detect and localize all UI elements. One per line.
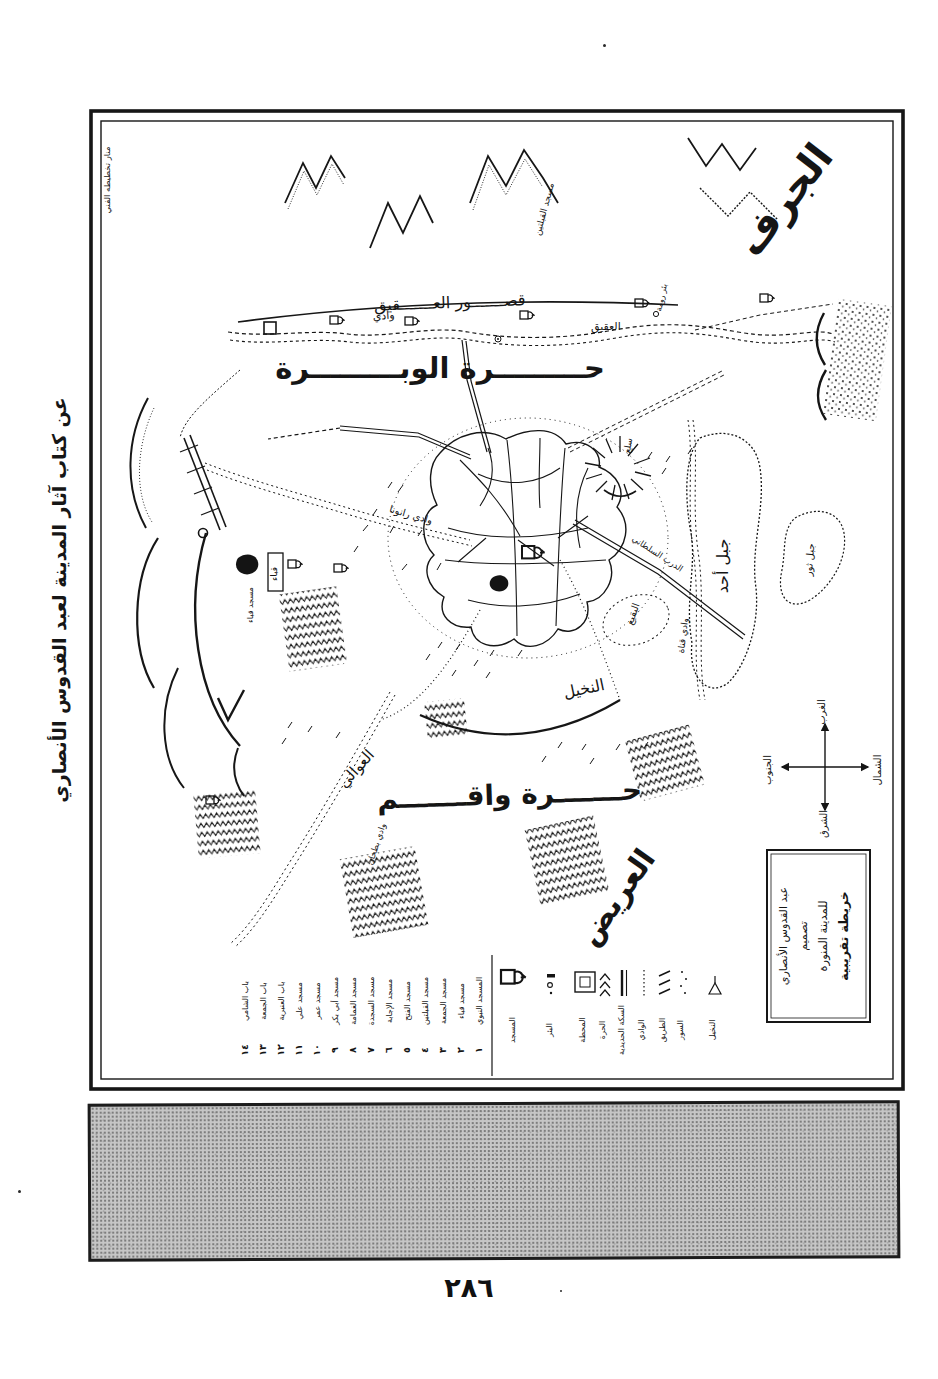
scan-speck <box>18 1190 21 1193</box>
legend-symbol-label: النخيل <box>708 1020 717 1041</box>
legend-entry-number: ١٤ <box>239 1044 250 1056</box>
legend-entry-label: المسجد النبوي <box>475 977 484 1025</box>
legend-entry-label: مسجد أبي بكر <box>330 977 340 1026</box>
legend-symbol-label: الطريق <box>658 1018 667 1043</box>
road-icon <box>659 971 670 994</box>
scan-speck <box>603 44 606 47</box>
lava-icon <box>600 974 610 996</box>
mosque-icon <box>405 317 420 325</box>
label-jabal-thawr: جبل ثور <box>803 543 817 578</box>
settlement-dots <box>817 299 892 421</box>
city-dark-quarter <box>490 575 509 591</box>
halftone-caption-bar <box>88 1100 901 1262</box>
station-icon <box>575 972 595 992</box>
legend-entry-label: مسجد القبلتين <box>421 977 430 1025</box>
label-awali: العوالي <box>335 746 379 792</box>
haram-mosque-icon <box>522 546 545 558</box>
cartouche-line2: للمدينة المنورة <box>816 901 831 972</box>
legend-entry-label: مسجد الغمامة <box>349 977 358 1024</box>
compass-south-label: الجنوب <box>762 755 773 785</box>
label-darb-sultani: الدرب السلطاني <box>630 533 685 573</box>
mosque-icon <box>330 316 345 324</box>
legend-symbol-label: المحطة <box>578 1017 587 1042</box>
mosque-icon <box>520 311 535 319</box>
corner-annotation: منار تخطيطه الفني <box>102 146 112 213</box>
margin-caption: عن كتاب آثار المدينة لعبد القدوس الأنصار… <box>48 250 76 950</box>
label-quba: قباء <box>269 567 279 581</box>
city-outline <box>424 431 626 647</box>
legend-symbol-label: الحرة <box>598 1021 607 1039</box>
cartouche-line4: عبد القدوس الأنصاري <box>776 887 790 985</box>
legend-entry-number: ١٠ <box>311 1044 322 1056</box>
legend-entry-label: مسجد السجدة <box>367 977 376 1026</box>
quba-area <box>236 553 349 591</box>
wadi-aqiq-branch <box>695 304 833 330</box>
legend-entry-label: مسجد قباء <box>457 983 466 1019</box>
west-ridge-arcs <box>130 370 244 796</box>
compass-east-label: الشرق <box>818 810 829 838</box>
legend-symbol-label: المسجد <box>508 1017 517 1043</box>
label-nakheel: النخيل <box>562 675 606 702</box>
label-wadi-qanat: وادي قناة <box>676 618 690 654</box>
wadi-aqiq-group <box>228 302 835 346</box>
railway-icon <box>622 970 627 996</box>
legend-entry-number: ٩ <box>329 1047 340 1053</box>
cartouche: خريطة تقريبية للمدينة المنورة تصميم عبد … <box>767 850 870 1022</box>
legend-entry-number: ١٣ <box>257 1044 268 1056</box>
legend-symbol-label: البئر <box>545 1023 554 1038</box>
label-jurf: الجرف <box>726 134 842 265</box>
legend-entry-number: ١٢ <box>275 1044 286 1056</box>
legend-entry-label: باب الجمعة <box>259 982 268 1019</box>
label-qiblatain: مسجد القبلتين <box>532 182 556 237</box>
page-number: ٢٨٦ <box>0 1272 938 1303</box>
map-plate: منار تخطيطه الفني قصـــــــور العـــــــ… <box>88 108 906 1093</box>
legend-numbered-section: المسجد النبوي١مسجد قباء٢مسجد الجمعة٣مسجد… <box>239 977 484 1056</box>
legend-symbols-section <box>501 970 721 996</box>
legend-entry-number: ٦ <box>383 1047 394 1053</box>
well-mark-dot <box>497 338 499 340</box>
mosque-icon <box>760 294 775 302</box>
well-icon <box>547 974 555 994</box>
legend-entry-number: ١ <box>473 1047 484 1053</box>
label-qusur-aqiq: قصـــــــور العـــــــقيق <box>374 290 526 315</box>
cartouche-line3: تصميم <box>797 921 810 951</box>
legend-entry-number: ٧ <box>365 1047 376 1053</box>
quba-dark-blob <box>236 555 258 575</box>
compass: الشمال الجنوب الغرب الشرق <box>762 699 883 838</box>
legend-entry-label: مسجد الفتح <box>403 981 412 1021</box>
legend-entry-number: ٤ <box>419 1047 430 1053</box>
legend-entry-number: ١١ <box>293 1044 304 1056</box>
label-harrat-wabara: حـــــــــرة الوبـــــــــرة <box>275 351 605 385</box>
compass-west-label: الغرب <box>816 699 827 725</box>
label-aqiq-word: العقيق <box>591 320 621 334</box>
label-harrat-waqim: حـــــــرة واقـــــــم <box>377 773 643 815</box>
legend-entry-label: مسجد الإجابة <box>385 979 395 1023</box>
legend-entry-label: باب العنبرية <box>277 981 286 1020</box>
railway <box>180 435 226 530</box>
label-bir-ruma: بئر رومة <box>654 283 669 312</box>
label-masjid-quba: مسجد قباء <box>246 587 255 623</box>
small-o-mark <box>199 529 208 538</box>
cartouche-line1: خريطة تقريبية <box>836 891 851 981</box>
map-inner-border <box>101 121 893 1079</box>
north-ridges <box>285 138 778 248</box>
label-jabal-uhud: جبل أحد <box>712 539 732 594</box>
building-square <box>264 322 276 334</box>
legend-entry-label: مسجد الجمعة <box>439 978 448 1024</box>
label-baqi: البقيع <box>624 601 643 626</box>
legend-symbol-label: السور <box>676 1020 685 1041</box>
legend-symbol-label: الوادي <box>637 1020 646 1041</box>
legend-entry-label: مسجد عمر <box>313 982 322 1020</box>
wadi-ranuna-lines <box>205 463 472 546</box>
mosque-icon <box>501 970 526 984</box>
legend-entry-number: ٣ <box>437 1047 448 1053</box>
legend-entry-label: باب الشامي <box>241 981 250 1021</box>
legend-symbol-labels: المسجدالبئرالمحطةالحرةالسكة الحديديةالوا… <box>508 1005 717 1055</box>
wadi-qanat-lines <box>688 420 705 700</box>
palm-icon <box>709 976 721 994</box>
legend-entry-number: ٨ <box>347 1047 358 1053</box>
scan-speck <box>560 1290 562 1292</box>
wadi-aqiq-line-2 <box>230 333 835 346</box>
legend-entry-label: مسجد علي <box>295 982 304 1019</box>
wall-icon <box>680 971 687 994</box>
bir-ruma-well <box>653 311 658 316</box>
legend-entry-number: ٢ <box>455 1047 466 1053</box>
wadi-aqiq-line-1 <box>228 325 833 338</box>
compass-north-label: الشمال <box>872 755 883 786</box>
label-wadi-word: وادي <box>372 308 395 322</box>
legend-symbol-label: السكة الحديدية <box>617 1005 626 1055</box>
city-streets <box>445 438 606 636</box>
legend-entry-number: ٥ <box>401 1047 412 1053</box>
